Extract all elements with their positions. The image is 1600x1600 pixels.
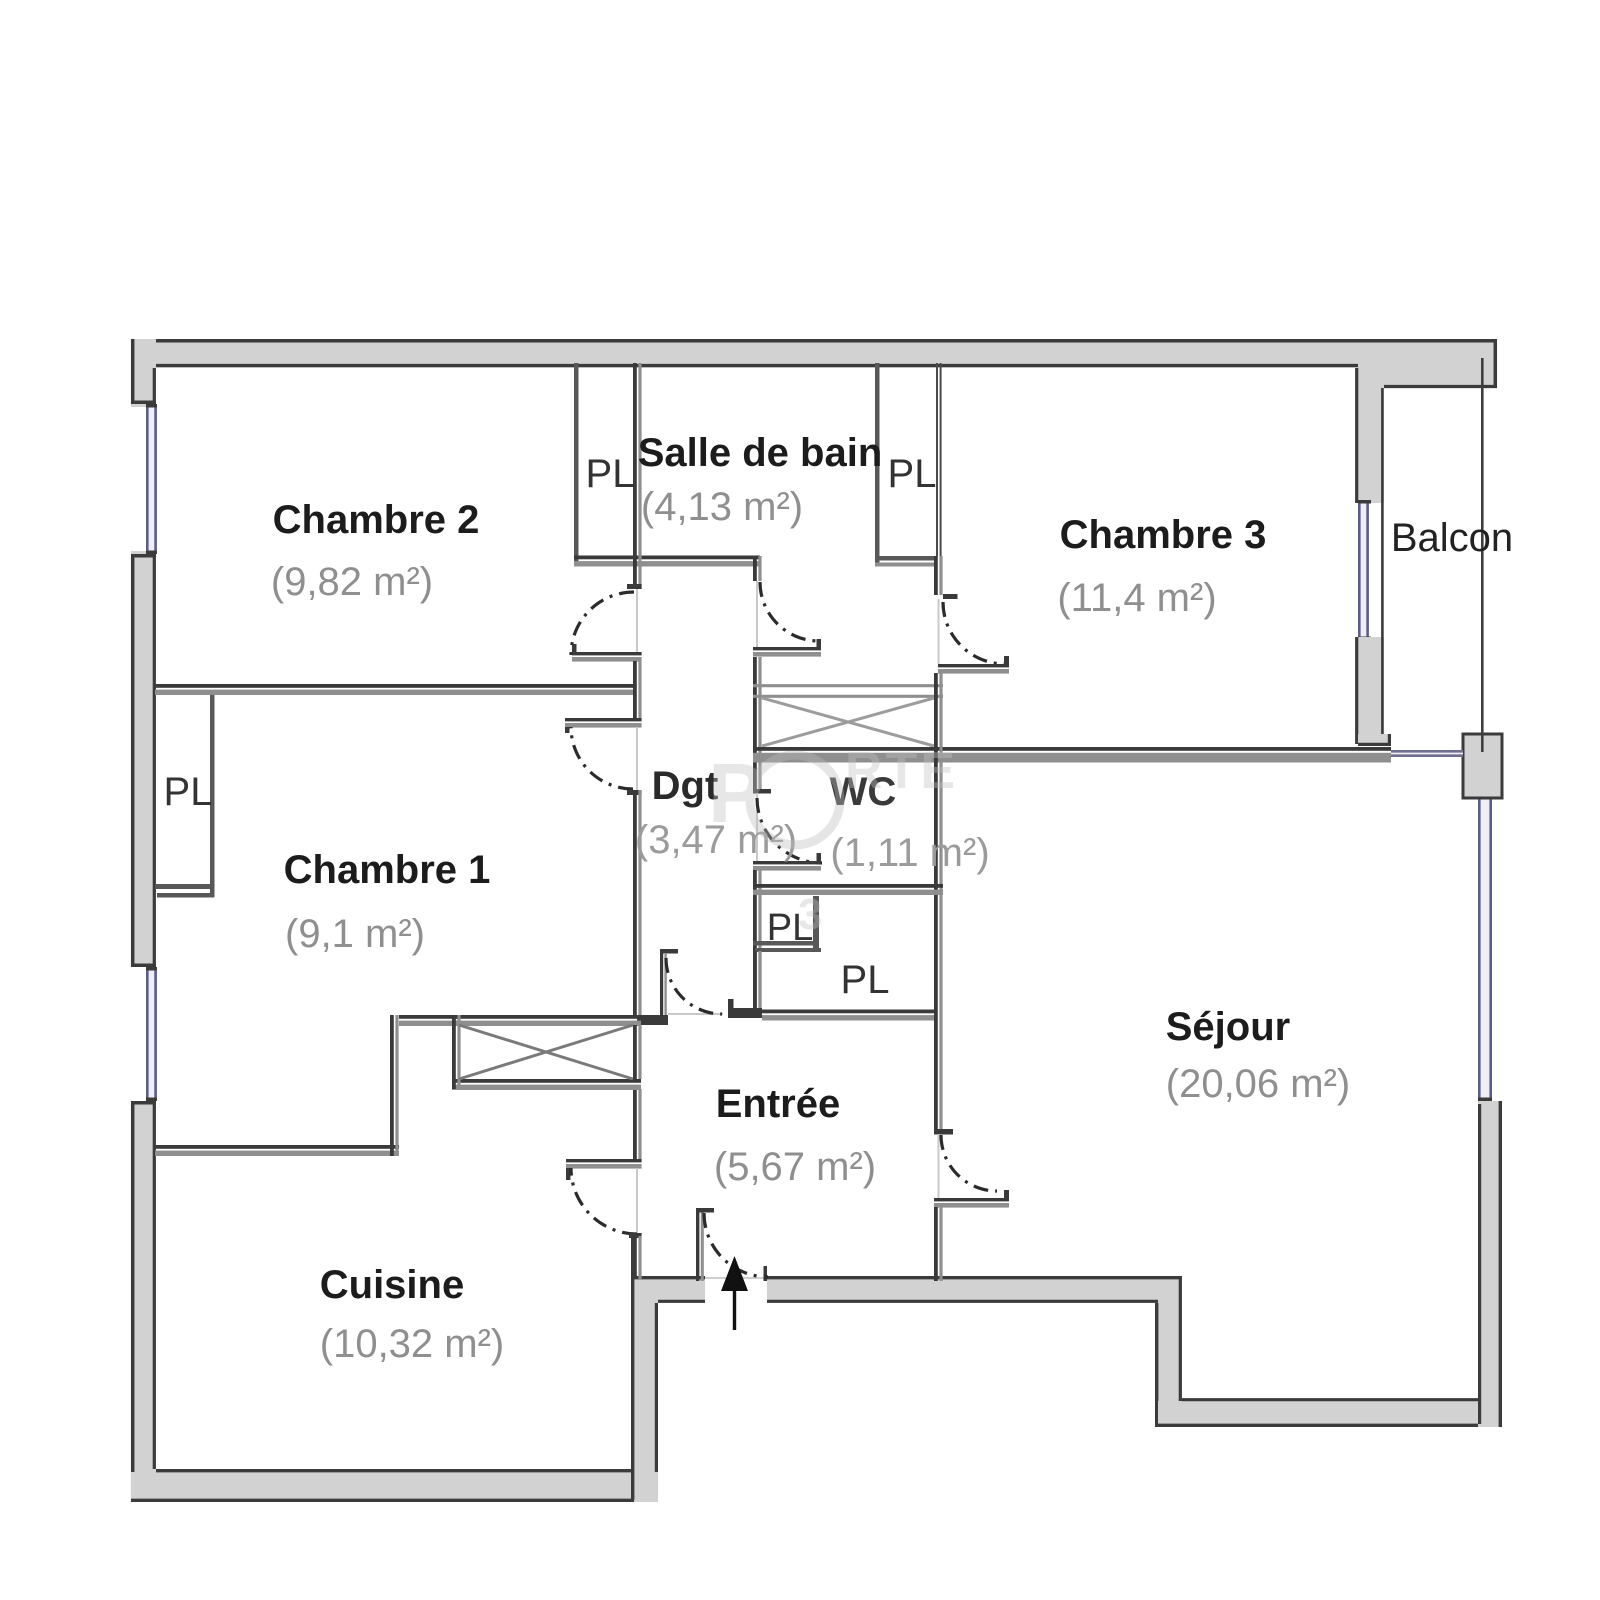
svg-text:PL: PL [164,770,213,814]
svg-text:Chambre 1: Chambre 1 [284,848,491,892]
svg-text:(20,06 m²): (20,06 m²) [1166,1062,1351,1106]
svg-text:PL: PL [586,452,635,496]
svg-text:Chambre 2: Chambre 2 [273,498,480,542]
svg-text:(9,1 m²): (9,1 m²) [285,912,425,956]
svg-text:Entrée: Entrée [716,1082,841,1126]
svg-text:Salle de bain: Salle de bain [638,431,883,475]
svg-text:RTE: RTE [845,742,958,800]
svg-text:(11,4 m²): (11,4 m²) [1057,576,1216,620]
svg-text:Séjour: Séjour [1166,1005,1290,1049]
svg-text:(5,67 m²): (5,67 m²) [714,1145,876,1189]
svg-text:(4,13 m²): (4,13 m²) [641,485,803,529]
svg-text:Balcon: Balcon [1391,516,1513,560]
svg-text:3: 3 [798,890,822,939]
svg-text:Cuisine: Cuisine [320,1263,464,1307]
svg-text:(9,82 m²): (9,82 m²) [271,560,433,604]
svg-text:PL: PL [888,452,937,496]
svg-text:(10,32 m²): (10,32 m²) [320,1322,505,1366]
svg-text:(1,11 m²): (1,11 m²) [830,831,989,875]
svg-text:P: P [708,746,764,840]
svg-text:PL: PL [841,958,890,1002]
svg-text:Chambre 3: Chambre 3 [1060,513,1267,557]
